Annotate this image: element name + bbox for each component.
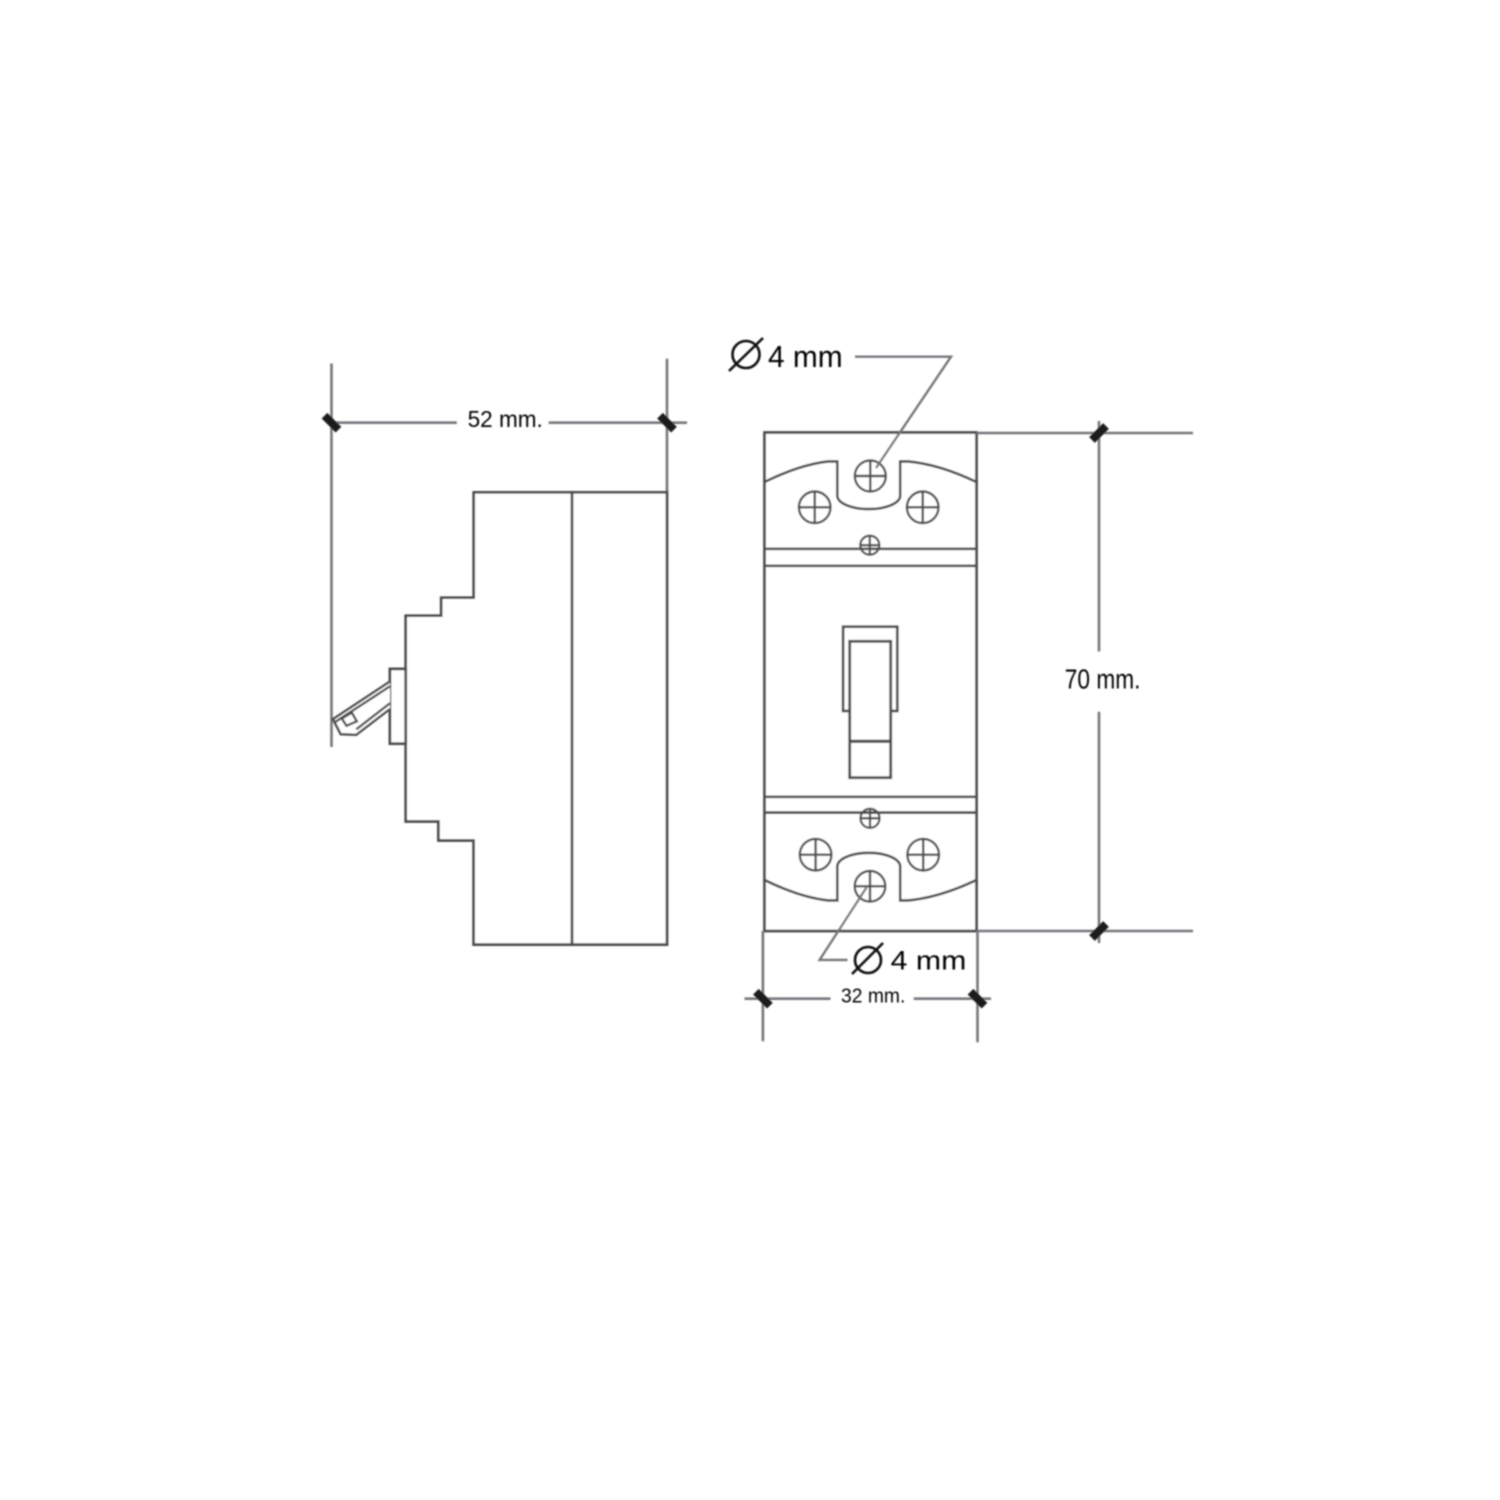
- svg-text:70 mm.: 70 mm.: [1065, 664, 1141, 695]
- svg-text:52 mm.: 52 mm.: [468, 406, 543, 432]
- svg-text:4 mm: 4 mm: [891, 946, 967, 976]
- svg-text:4 mm: 4 mm: [768, 339, 843, 374]
- svg-text:32 mm.: 32 mm.: [841, 986, 905, 1008]
